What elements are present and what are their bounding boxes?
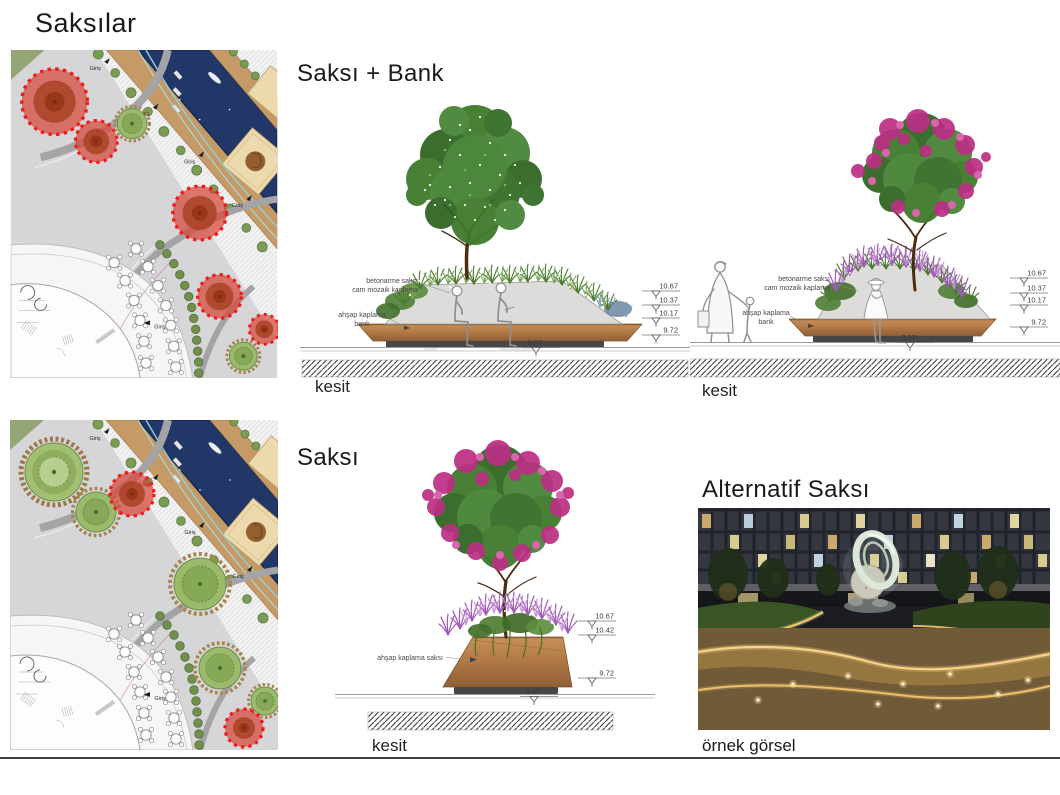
planter-highlight-red: [75, 121, 117, 163]
kesit-caption: kesit: [315, 377, 350, 397]
kesit-caption: kesit: [372, 736, 407, 756]
ground-hatch: [368, 712, 613, 730]
elevation-value: 9.37: [527, 338, 542, 347]
label-wood-planter: ahşap kaplama saksı: [377, 655, 443, 662]
label-wood-bench-2: bank: [758, 319, 774, 326]
page-title: Saksılar: [35, 8, 137, 39]
photo-caption: örnek görsel: [702, 736, 796, 756]
elevation-value: 9.37: [901, 333, 916, 342]
ground-lines: [335, 695, 655, 699]
ground-lines: [690, 343, 1060, 347]
elevation-value: 10.37: [659, 296, 678, 305]
ground-hatch: [302, 360, 688, 377]
elevation-value: 10.67: [1027, 269, 1046, 278]
bench: [789, 319, 996, 342]
bench-base: [813, 336, 973, 342]
bottom-rule: [0, 757, 1060, 759]
elevation-value: 9.72: [599, 669, 614, 678]
section-heading-alternatif: Alternatif Saksı: [702, 476, 870, 504]
label-concrete-planter-2: cam mozaik kaplama: [352, 287, 418, 294]
elevation-value: 9.37: [525, 687, 540, 696]
bench: [358, 324, 642, 347]
elevation-value: 10.67: [595, 612, 614, 621]
label-concrete-planter-2: cam mozaik kaplama: [764, 285, 830, 292]
label-concrete-planter: betonarme saksı: [366, 278, 418, 285]
planter-highlight-red: [173, 186, 227, 240]
sun-hat: [868, 280, 884, 285]
bench-base: [386, 341, 604, 347]
elevation-value: 10.17: [659, 309, 678, 318]
section-drawing-saksi: ahşap kaplama saksı 10.67 10.42 9.72 9.3…: [330, 425, 660, 735]
wood-planter: [443, 637, 572, 694]
example-photo: [698, 508, 1050, 730]
section-drawing-saksi-bank-right: betonarme saksı cam mozaik kaplama ahşap…: [690, 95, 1060, 395]
kesit-caption: kesit: [702, 381, 737, 401]
elevation-value: 10.42: [595, 626, 614, 635]
grandmother-figure: [698, 262, 746, 342]
elevation-value: 9.72: [1031, 318, 1046, 327]
lit-paths: [698, 628, 1050, 730]
site-plan-saksi: [10, 420, 278, 750]
planter-base: [454, 687, 558, 694]
planter-highlight-red: [249, 314, 278, 344]
planter-highlight-red: [198, 275, 242, 319]
label-concrete-planter: betonarme saksı: [778, 276, 830, 283]
walking-figures: [698, 262, 754, 342]
planter-highlight-red: [22, 69, 88, 135]
tree-canopy: [406, 105, 544, 245]
slide: Saksılar: [0, 0, 1060, 795]
label-wood-bench: ahşap kaplama: [742, 310, 790, 317]
label-wood-bench-2: bank: [354, 321, 370, 328]
label-wood-bench: ahşap kaplama: [338, 312, 386, 319]
planter-highlight-red: [225, 709, 263, 747]
elevation-value: 9.72: [663, 326, 678, 335]
elevation-value: 10.67: [659, 282, 678, 291]
site-plan-saksi-bank: [10, 50, 278, 378]
tree-green: [406, 105, 544, 278]
uplight-glow: [989, 581, 1007, 599]
elevation-value: 10.37: [1027, 284, 1046, 293]
elevation-value: 10.17: [1027, 296, 1046, 305]
section-heading-saksi-bank: Saksı + Bank: [297, 60, 444, 88]
section-drawing-saksi-bank-left: PD: [300, 95, 690, 395]
planter-highlight-red: [110, 472, 154, 516]
shopping-bag: [698, 311, 709, 327]
ground-hatch: [690, 359, 1060, 377]
uplight-glow: [719, 583, 737, 601]
